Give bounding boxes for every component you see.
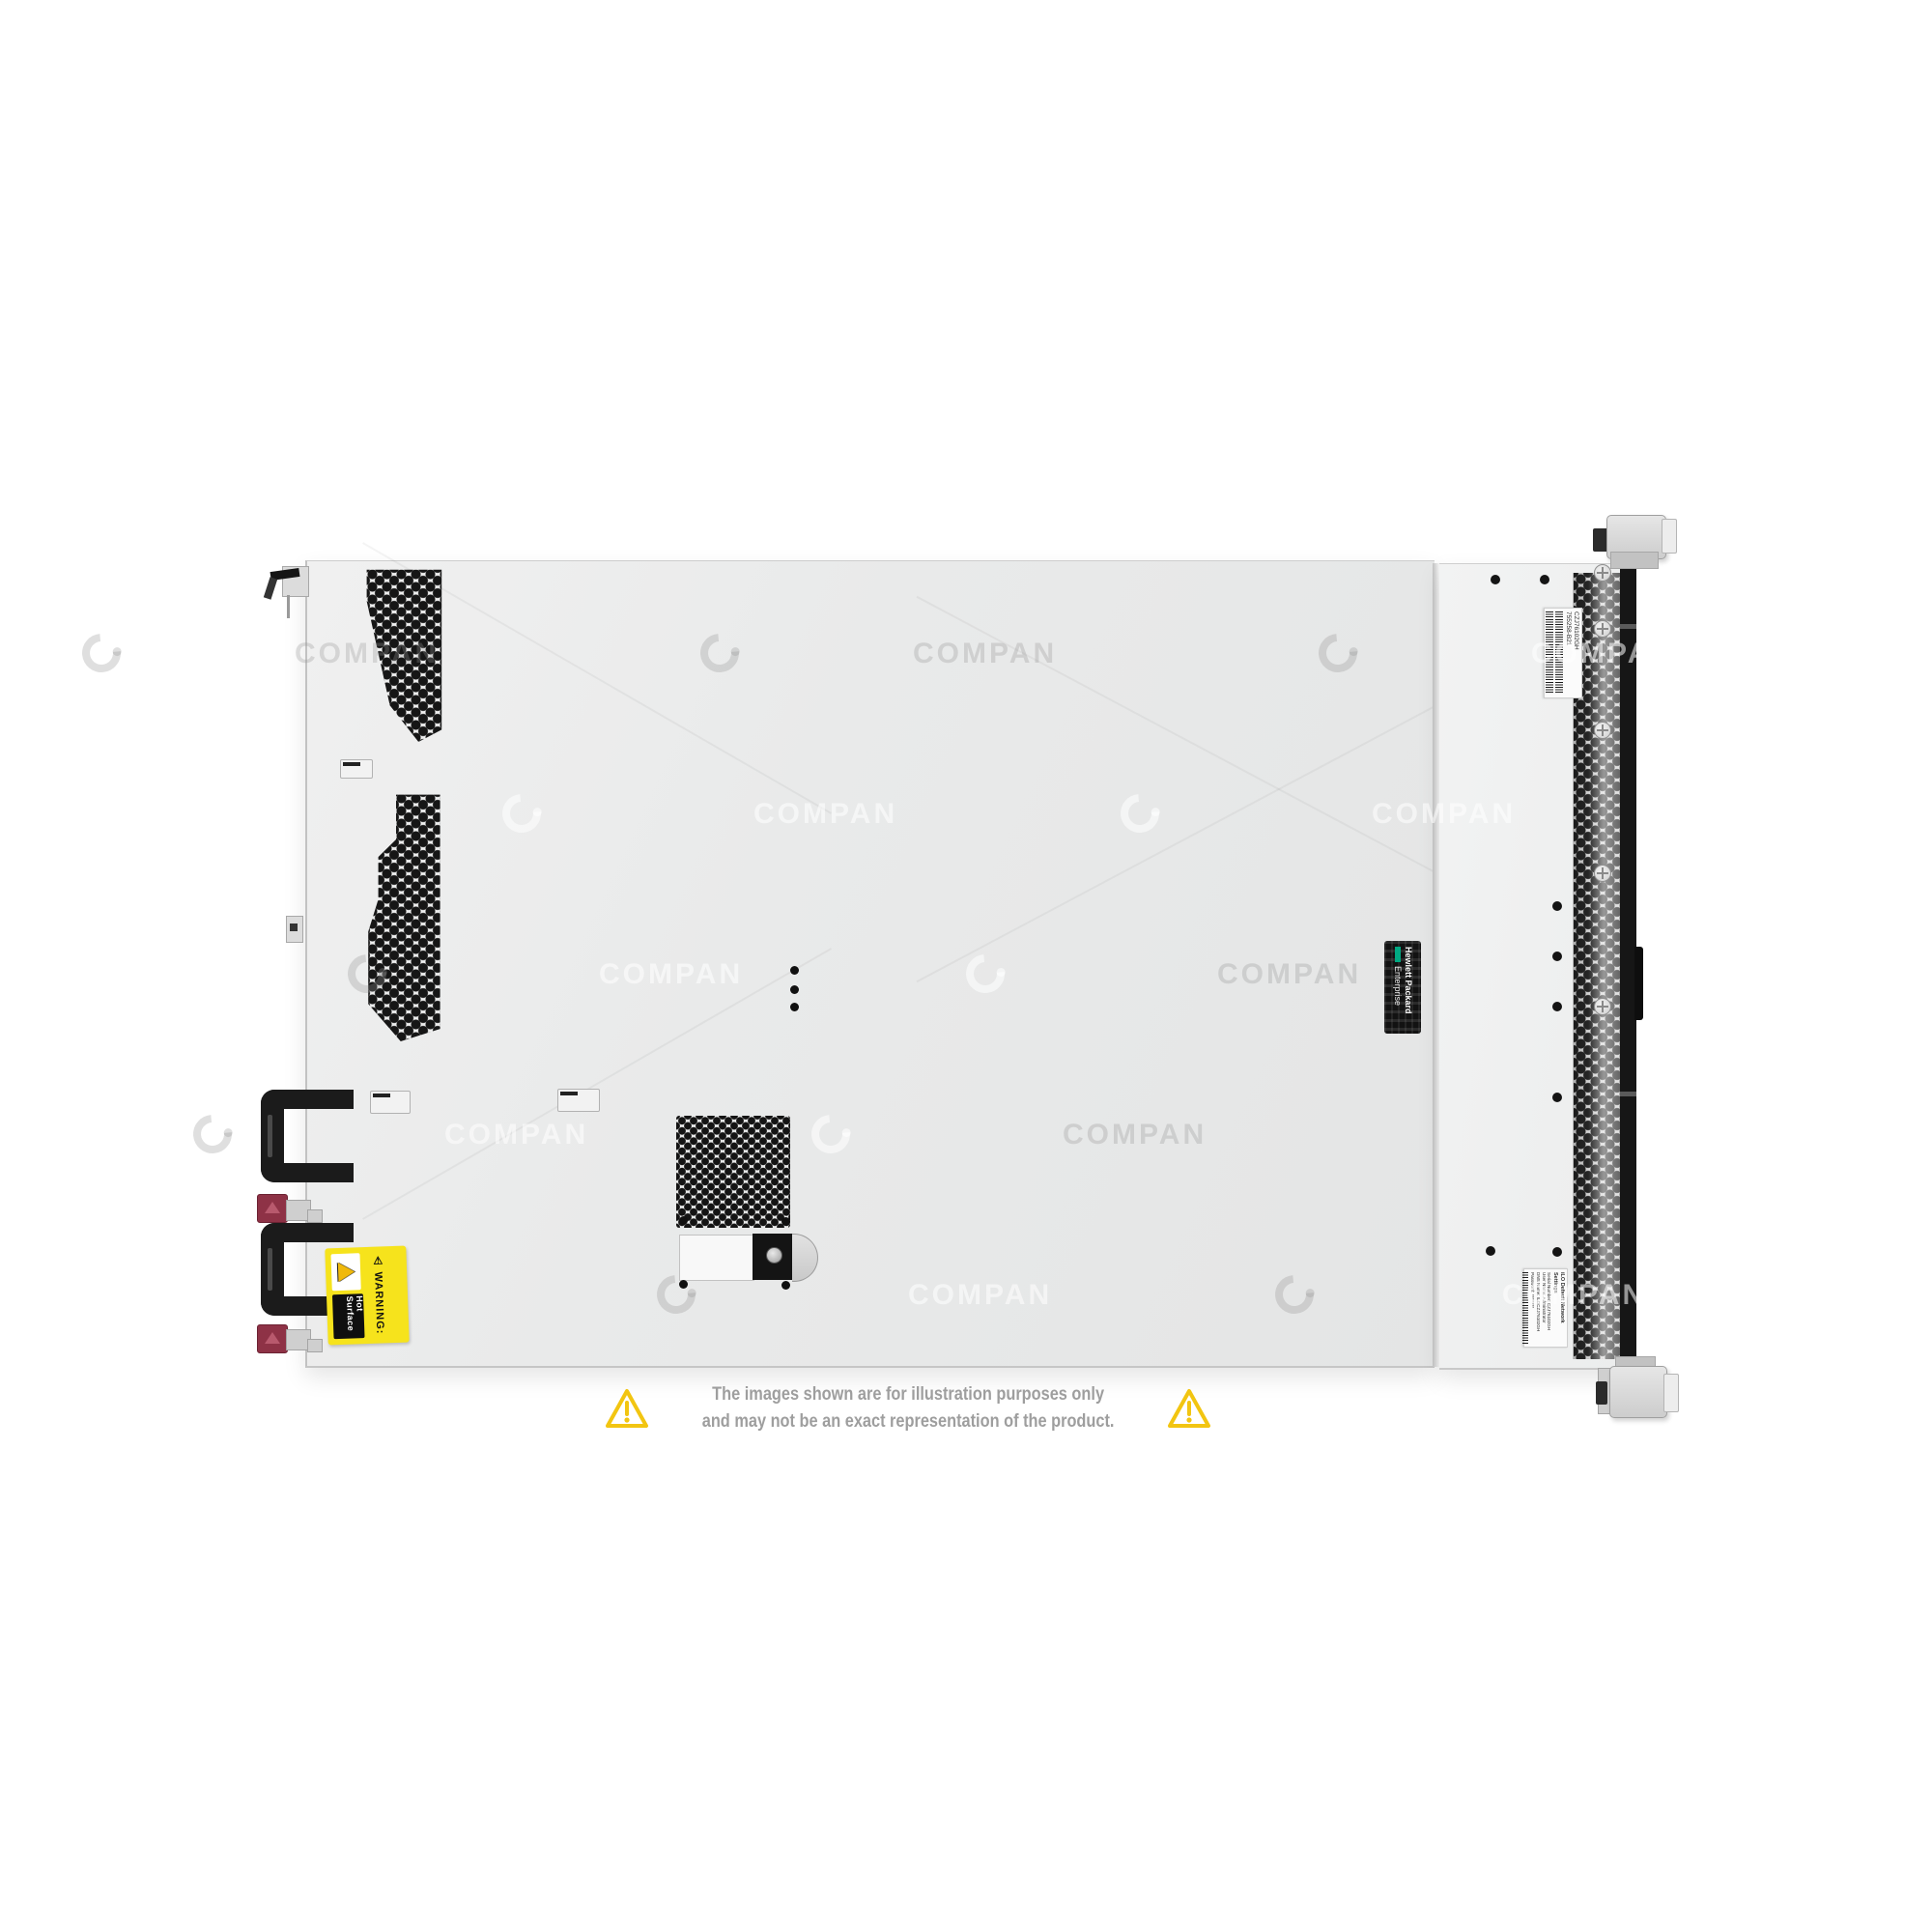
screw-hole xyxy=(1486,1246,1495,1256)
rack-ear-top-tab xyxy=(1662,519,1677,554)
disclaimer-line2: and may not be an exact representation o… xyxy=(702,1408,1115,1435)
hot-surface-text: Hot Surface xyxy=(345,1295,366,1339)
cover-front-seam xyxy=(1433,563,1439,1367)
hpe-label-line1: Hewlett Packard xyxy=(1403,947,1413,1034)
bezel-strip-notch xyxy=(1620,1092,1636,1096)
warning-triangle-icon xyxy=(338,1262,355,1282)
serial-number-text: CZJ76102GH xyxy=(1572,611,1579,695)
cover-dot xyxy=(790,1003,799,1011)
cover-latch-tab xyxy=(370,1091,411,1114)
screw-hole xyxy=(1552,952,1562,961)
psu-release-tab-2 xyxy=(257,1324,288,1353)
hpe-brand-label: Hewlett Packard Enterprise xyxy=(1383,941,1422,1034)
hpe-label-line2-text: Enterprise xyxy=(1393,966,1403,1006)
hpe-green-logo xyxy=(1395,947,1401,962)
rear-connector-notch xyxy=(290,923,298,931)
product-photo-canvas: Hot Surface ⚠ WARNING: Hewlett Packard E… xyxy=(0,0,1932,1932)
psu-release-tab-1 xyxy=(257,1194,288,1223)
warning-hot-surface-label: Hot Surface ⚠ WARNING: xyxy=(325,1246,409,1346)
philips-screw xyxy=(1594,998,1611,1015)
part-number-text: 755258-B21 xyxy=(1564,611,1572,695)
screw-hole xyxy=(1552,1002,1562,1011)
hpe-label-line2: Enterprise xyxy=(1392,947,1403,1034)
warning-heading-text: WARNING: xyxy=(372,1271,385,1334)
psu-handle-1 xyxy=(261,1090,354,1182)
cover-release-recess xyxy=(679,1235,754,1281)
warning-heading: ⚠ WARNING: xyxy=(372,1254,387,1339)
rear-latch-hook xyxy=(264,577,277,599)
bottom-vent-perforation xyxy=(676,1116,790,1228)
rear-latch-pin xyxy=(287,595,290,618)
philips-screw xyxy=(1594,564,1611,582)
server-top-cover xyxy=(305,560,1435,1368)
cover-release-screw xyxy=(766,1247,782,1264)
front-bezel-tab xyxy=(1634,947,1643,1020)
warning-triangle-icon xyxy=(1167,1388,1211,1429)
psu-connector-1-tail xyxy=(307,1209,323,1223)
disclaimer-banner: The images shown are for illustration pu… xyxy=(580,1381,1236,1435)
serial-barcode-label: CZJ76102GH 755258-B21 xyxy=(1543,607,1583,699)
philips-screw xyxy=(1594,722,1611,739)
ilo-label-title: iLO Default Network Settings xyxy=(1551,1272,1565,1344)
watermark-logo-icon xyxy=(74,626,128,680)
barcode xyxy=(1555,611,1563,695)
latch-screw-hole xyxy=(679,1280,688,1289)
warning-small-triangle-icon: ⚠ xyxy=(372,1254,384,1267)
ilo-settings-label: iLO Default Network Settings Serial Numb… xyxy=(1522,1267,1569,1349)
latch-screw-hole xyxy=(781,1281,790,1290)
rack-ear-bottom xyxy=(1609,1366,1667,1418)
barcode xyxy=(1522,1272,1528,1344)
ilo-label-line2: User Name: Administrator xyxy=(1541,1272,1547,1344)
ilo-label-line1: Serial Number: CZJ76102GH xyxy=(1547,1272,1552,1344)
bezel-strip-notch xyxy=(1620,624,1636,629)
cover-latch-tab xyxy=(340,759,373,779)
disclaimer-line1: The images shown are for illustration pu… xyxy=(702,1381,1115,1408)
cover-crease xyxy=(916,596,1514,915)
philips-screw xyxy=(1594,865,1611,882)
warning-triangle-icon xyxy=(605,1388,649,1429)
rack-ear-top-base xyxy=(1610,552,1659,569)
barcode xyxy=(1546,611,1553,695)
warning-triangle-box xyxy=(330,1253,360,1291)
psu-connector-2-tail xyxy=(307,1339,323,1352)
rack-ear-bottom-tab xyxy=(1663,1374,1679,1412)
disclaimer-text: The images shown are for illustration pu… xyxy=(702,1381,1115,1435)
screw-hole xyxy=(1552,1247,1562,1257)
latch-screw-hole xyxy=(679,1216,688,1225)
cover-dot xyxy=(790,966,799,975)
cover-dot xyxy=(790,985,799,994)
cover-latch-tab xyxy=(557,1089,600,1112)
hot-surface-box: Hot Surface xyxy=(332,1293,365,1339)
philips-screw xyxy=(1594,620,1611,638)
cover-crease xyxy=(916,664,1514,982)
ilo-label-line3: DNS Name: ILOCZJ76102GH xyxy=(1535,1272,1541,1344)
ilo-label-line4: Password: ******** xyxy=(1529,1272,1535,1344)
screw-hole xyxy=(1552,1093,1562,1102)
screw-hole xyxy=(1540,575,1549,584)
watermark-logo-icon xyxy=(185,1107,240,1161)
rack-ear-bottom-dark xyxy=(1596,1381,1607,1405)
screw-hole xyxy=(1491,575,1500,584)
screw-hole xyxy=(1552,901,1562,911)
latch-screw-hole xyxy=(781,1217,790,1226)
